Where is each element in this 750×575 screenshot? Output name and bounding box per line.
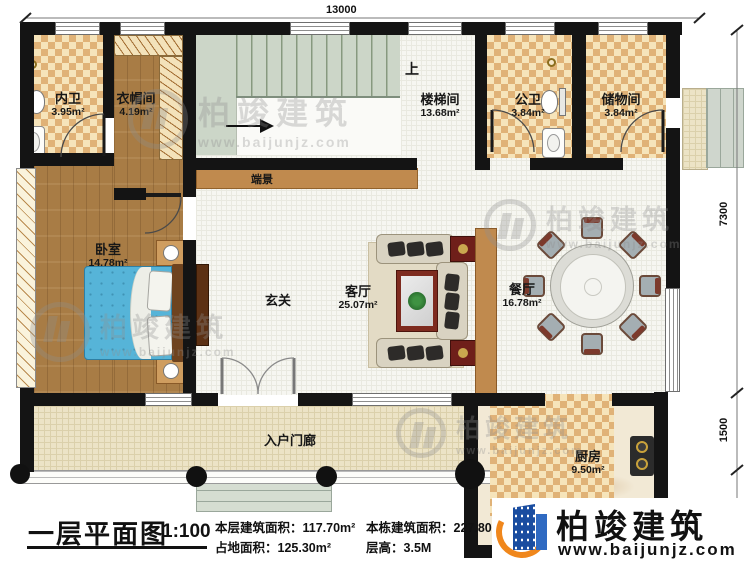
sofa-top [376,234,454,264]
toilet-tank [559,88,566,116]
dim-tick [731,388,743,398]
sofa-cushion [387,241,406,257]
nightstand-lamp [163,363,179,379]
company-logo-icon [496,504,554,560]
sofa-cushion [425,241,444,257]
stair-void [236,98,401,155]
stair-treads [236,35,400,98]
dim-top-label: 13000 [326,4,357,16]
dim-tick [694,13,705,23]
dim-right-7300: 7300 [718,202,730,226]
wall-storage-divider [572,22,586,170]
room-label-neiwei: 内卫 3.95m² [51,92,84,118]
hall-cabinet [196,264,209,346]
duanjing-label: 端景 [251,171,273,187]
wall-bedroom-north [114,188,146,200]
wall-bath1-south [20,153,114,166]
label-stairs-up: 上 [405,59,419,79]
wall-bottom [298,393,352,406]
nightstand-lamp [163,245,179,261]
window [120,22,165,35]
plant [408,292,426,310]
sofa-right [436,262,468,340]
dim-tick [731,25,743,35]
floor-plan-canvas: 端景 [0,0,750,575]
window [408,22,462,35]
logo-building-side [536,514,547,550]
plan-scale: 1:100 [162,521,211,543]
console-duanjing [196,168,418,189]
dining-chair [639,275,661,297]
window [55,22,100,35]
room-label-keting: 客厅 25.07m² [338,285,377,311]
bay-window [16,168,36,388]
wall-kitchen-top [612,393,656,406]
burner [636,441,648,453]
sofa-bottom [376,338,454,368]
stove [630,436,654,476]
wall-bath2-west [475,22,487,170]
closet-shelf-right [159,56,183,160]
bed-pillow [147,270,174,312]
stat-value: 125.30m² [278,541,332,555]
stair-landing [196,35,236,155]
entry-porch-floor [20,406,464,470]
burner [636,458,648,470]
shower-head [547,58,556,67]
side-porch [682,88,708,170]
company-logo: 柏竣建筑 www.baijunjz.com [492,498,748,570]
porch-column [316,466,337,487]
dining-chair [581,217,603,239]
sofa-cushion [387,345,406,361]
wall-right-mid [666,128,680,288]
sofa-cushion [406,345,425,361]
wall-stair-south [183,158,417,170]
bed-pillow [147,315,174,357]
label-xuanguan: 玄关 [265,290,291,309]
wall-bedroom-east-upper [183,22,196,197]
stat-height: 层高：3.5M [366,537,431,556]
sofa-cushion [444,311,460,330]
window [665,288,680,392]
stat-label: 占地面积： [215,541,278,555]
sofa-cushion [406,241,425,257]
side-steps [706,88,744,168]
room-label-gongwei: 公卫 3.84m² [511,93,544,119]
wall-kitchen-top [478,393,545,406]
window [352,393,452,406]
side-table-plant [458,244,468,254]
wall-bottom [20,393,145,406]
side-door-opening [666,98,680,128]
wall-bedroom-east-lower [183,240,196,395]
room-label-chufang: 厨房 9.50m² [571,450,604,476]
stat-floor-area: 本层建筑面积：117.70m² [215,517,355,536]
stat-total-area: 本栋建筑面积：227.80m² [366,517,507,536]
sofa-cushion [444,273,460,292]
dim-right-1500: 1500 [718,418,730,442]
title-underline [27,546,207,549]
porch-column [10,464,30,484]
porch-edge-trim [20,470,490,484]
closet-shelf-top [114,35,183,56]
porch-column [186,466,207,487]
room-label-loutijian: 楼梯间 13.68m² [420,93,459,119]
dim-tick [731,465,743,475]
side-table-plant [458,348,468,358]
window [598,22,648,35]
stair-break-line [236,96,400,98]
porch-column [455,459,485,489]
room-label-canting: 餐厅 16.78m² [502,283,541,309]
stat-label: 本层建筑面积： [215,521,303,535]
stat-label: 层高： [366,541,404,555]
window [505,22,555,35]
stat-value: 117.70m² [303,521,356,535]
company-logo-url: www.baijunjz.com [558,540,737,560]
partition-screen [475,228,497,398]
room-label-woshi: 卧室 14.78m² [88,243,127,269]
bed [84,266,184,360]
sofa-cushion [425,345,444,361]
stat-value: 3.5M [404,541,432,555]
wall-bath2-south [475,158,490,170]
label-porch: 入户门廊 [264,430,316,449]
room-label-chuwujian: 储物间 3.84m² [601,93,640,119]
dining-table-center [584,278,602,296]
wall-bath1-divider [103,22,114,118]
window [145,393,192,406]
stat-footprint: 占地面积：125.30m² [215,537,331,556]
dining-chair [581,333,603,355]
stat-label: 本栋建筑面积： [366,521,454,535]
sofa-cushion [444,292,460,311]
bath2-sink [542,128,565,158]
room-label-yimaojian: 衣帽间 4.19m² [116,92,155,118]
wall-right-upper [666,22,680,98]
logo-building [513,504,535,550]
window [290,22,350,35]
